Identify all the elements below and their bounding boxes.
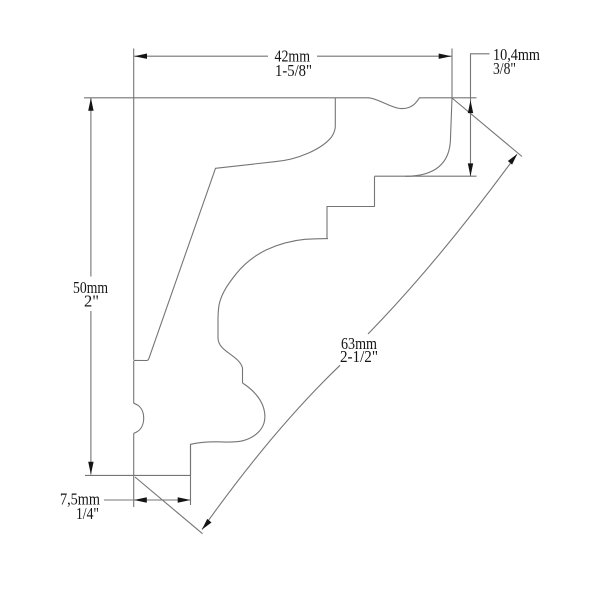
svg-text:3/8": 3/8": [493, 61, 516, 78]
svg-text:1/4": 1/4": [76, 506, 99, 523]
svg-text:2-1/2": 2-1/2": [340, 348, 378, 366]
svg-text:2": 2": [84, 292, 99, 311]
svg-text:1-5/8": 1-5/8": [275, 62, 312, 80]
